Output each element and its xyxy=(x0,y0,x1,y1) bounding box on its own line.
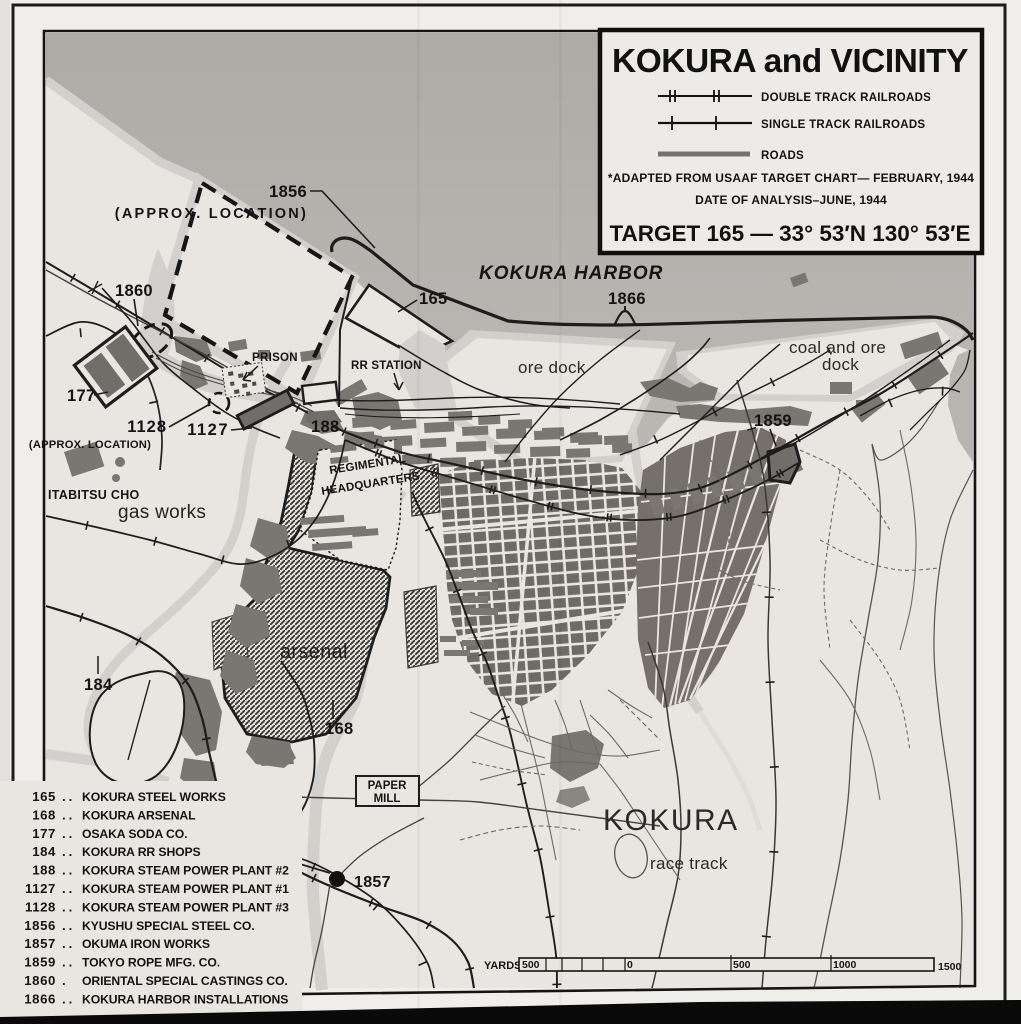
svg-text:..: .. xyxy=(62,991,75,1006)
svg-text:KOKURA and VICINITY: KOKURA and VICINITY xyxy=(612,43,968,80)
svg-text:YARDS: YARDS xyxy=(484,960,522,972)
svg-text:500: 500 xyxy=(522,959,540,971)
svg-text:OKUMA IRON WORKS: OKUMA IRON WORKS xyxy=(82,937,210,951)
svg-text:168: 168 xyxy=(325,720,353,738)
svg-text:1860: 1860 xyxy=(115,282,153,300)
svg-text:*ADAPTED FROM USAAF TARGET CHA: *ADAPTED FROM USAAF TARGET CHART— FEBRUA… xyxy=(608,171,974,185)
svg-text:..: .. xyxy=(62,955,75,970)
svg-text:..: .. xyxy=(62,826,75,841)
svg-text:arsenal: arsenal xyxy=(280,641,348,663)
svg-text:KOKURA STEAM POWER PLANT #3: KOKURA STEAM POWER PLANT #3 xyxy=(82,900,289,914)
svg-text:TOKYO ROPE MFG. CO.: TOKYO ROPE MFG. CO. xyxy=(82,956,220,970)
svg-text:..: .. xyxy=(62,863,75,878)
svg-text:KOKURA STEEL WORKS: KOKURA STEEL WORKS xyxy=(82,790,226,804)
svg-text:KOKURA: KOKURA xyxy=(603,804,739,837)
svg-text:1000: 1000 xyxy=(833,959,857,971)
svg-text:165: 165 xyxy=(419,290,447,308)
svg-text:ORIENTAL SPECIAL CASTINGS CO.: ORIENTAL SPECIAL CASTINGS CO. xyxy=(82,974,288,988)
svg-text:1860: 1860 xyxy=(24,973,56,988)
svg-text:(APPROX. LOCATION): (APPROX. LOCATION) xyxy=(115,206,308,222)
svg-text:..: .. xyxy=(62,899,75,914)
svg-text:1128: 1128 xyxy=(127,418,167,436)
svg-text:1866: 1866 xyxy=(24,991,56,1006)
svg-text:PRISON: PRISON xyxy=(252,352,298,364)
svg-text:188: 188 xyxy=(311,418,339,436)
svg-text:1500: 1500 xyxy=(938,961,962,973)
svg-text:168: 168 xyxy=(32,807,56,822)
svg-text:1866: 1866 xyxy=(608,290,646,308)
svg-text:dock: dock xyxy=(822,355,859,374)
svg-text:..: .. xyxy=(62,844,75,859)
svg-text:1856: 1856 xyxy=(24,918,56,933)
svg-text:DOUBLE TRACK RAILROADS: DOUBLE TRACK RAILROADS xyxy=(761,92,931,104)
svg-text:177: 177 xyxy=(67,387,95,405)
svg-text:PAPER: PAPER xyxy=(368,780,407,792)
svg-text:..: .. xyxy=(62,918,75,933)
svg-text:KOKURA STEAM POWER PLANT #1: KOKURA STEAM POWER PLANT #1 xyxy=(82,882,289,896)
svg-text:TARGET 165 — 33° 53′N 130°: TARGET 165 — 33° 53′N 130° 53′E xyxy=(609,221,970,246)
svg-text:..: .. xyxy=(62,807,75,822)
svg-text:ore dock: ore dock xyxy=(518,358,586,377)
svg-text:RR STATION: RR STATION xyxy=(351,360,422,372)
svg-text:177: 177 xyxy=(32,826,56,841)
svg-text:gas works: gas works xyxy=(118,502,206,523)
svg-text:(APPROX. LOCATION): (APPROX. LOCATION) xyxy=(29,439,151,451)
svg-text:MILL: MILL xyxy=(374,793,401,805)
svg-text:0: 0 xyxy=(627,959,633,971)
svg-text:1857: 1857 xyxy=(24,936,56,951)
svg-text:ROADS: ROADS xyxy=(761,150,804,162)
svg-text:..: .. xyxy=(62,789,75,804)
svg-text:1859: 1859 xyxy=(24,955,56,970)
svg-text:1859: 1859 xyxy=(754,412,792,430)
svg-text:KOKURA ARSENAL: KOKURA ARSENAL xyxy=(82,808,196,822)
svg-text:DATE OF ANALYSIS–JUNE, 1944: DATE OF ANALYSIS–JUNE, 1944 xyxy=(695,193,887,207)
svg-text:1127: 1127 xyxy=(25,881,56,896)
svg-text:1127: 1127 xyxy=(187,421,229,439)
svg-text:1128: 1128 xyxy=(25,899,56,914)
svg-text:KOKURA STEAM POWER PLANT #2: KOKURA STEAM POWER PLANT #2 xyxy=(82,864,289,878)
svg-text:184: 184 xyxy=(32,844,56,859)
svg-text:184: 184 xyxy=(84,676,113,694)
svg-text:KYUSHU SPECIAL STEEL CO.: KYUSHU SPECIAL STEEL CO. xyxy=(82,919,255,933)
svg-text:1856: 1856 xyxy=(269,183,307,201)
svg-text:500: 500 xyxy=(733,959,751,971)
svg-text:188: 188 xyxy=(32,863,56,878)
svg-text:KOKURA RR SHOPS: KOKURA RR SHOPS xyxy=(82,845,201,859)
svg-text:KOKURA HARBOR INSTALLATIONS: KOKURA HARBOR INSTALLATIONS xyxy=(82,992,288,1006)
svg-text:165: 165 xyxy=(32,789,56,804)
svg-text:.: . xyxy=(62,973,69,988)
svg-text:1857: 1857 xyxy=(354,874,391,891)
svg-text:SINGLE TRACK RAILROADS: SINGLE TRACK RAILROADS xyxy=(761,119,925,131)
svg-text:ITABITSU CHO: ITABITSU CHO xyxy=(48,488,140,502)
svg-text:race track: race track xyxy=(650,854,728,873)
svg-text:KOKURA HARBOR: KOKURA HARBOR xyxy=(479,263,663,284)
svg-text:OSAKA SODA CO.: OSAKA SODA CO. xyxy=(82,827,187,841)
svg-text:..: .. xyxy=(62,936,75,951)
svg-text:..: .. xyxy=(62,881,75,896)
